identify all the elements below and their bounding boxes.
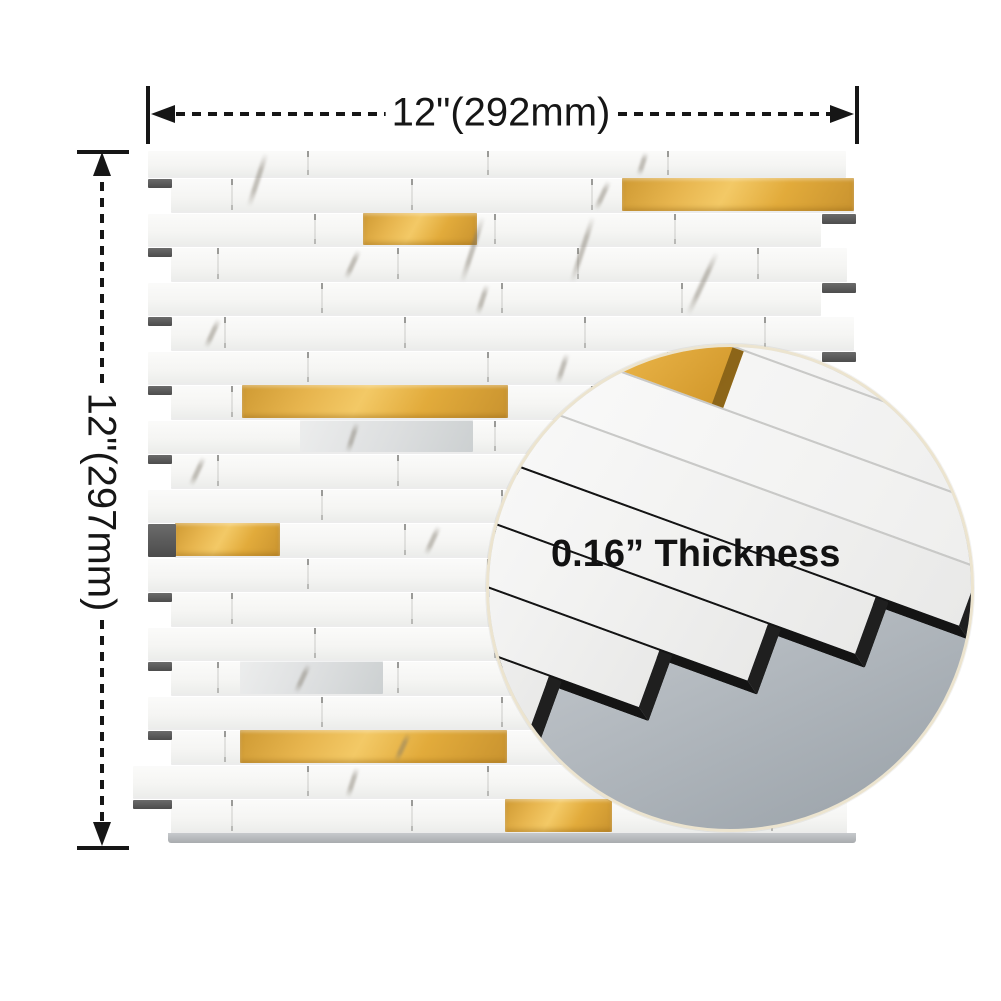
height-dimension-label: 12"(297mm): [79, 387, 124, 618]
dimension-endbar-right: [855, 86, 859, 144]
tile-row: [148, 150, 846, 176]
grout-joint: [321, 490, 323, 521]
backing-stub-right: [822, 283, 856, 293]
grout-joint: [591, 179, 593, 210]
grout-joint: [224, 731, 226, 762]
gold-accent: [175, 523, 280, 556]
product-dimension-image: 0.16” Thickness 12"(292mm) 12"(297mm): [0, 0, 1001, 1001]
width-dimension-label: 12"(292mm): [386, 91, 617, 136]
backing-stub-left: [148, 731, 172, 740]
grout-joint: [224, 317, 226, 348]
grout-joint: [231, 593, 233, 624]
arrow-left-icon: [151, 105, 175, 123]
gold-accent: [242, 385, 508, 418]
tile-row: [171, 316, 854, 349]
marble-accent: [240, 661, 383, 694]
gold-accent: [505, 799, 612, 832]
panel-bottom-edge: [168, 833, 856, 843]
grout-joint: [674, 214, 676, 245]
backing-stub-left: [148, 317, 172, 326]
grout-joint: [667, 151, 669, 175]
dimension-endbar-left: [146, 86, 150, 144]
grout-joint: [404, 524, 406, 555]
thickness-label: 0.16” Thickness: [551, 533, 840, 576]
backing-stub-left: [148, 455, 172, 464]
grout-joint: [321, 283, 323, 314]
grout-joint: [217, 455, 219, 486]
dimension-dashed-line: [100, 620, 104, 830]
grout-joint: [321, 697, 323, 728]
grout-joint: [307, 766, 309, 797]
grout-joint: [231, 179, 233, 210]
dimension-dashed-line: [618, 112, 844, 116]
grout-joint: [584, 317, 586, 348]
arrow-right-icon: [830, 105, 854, 123]
grout-joint: [411, 800, 413, 831]
grout-joint: [681, 283, 683, 314]
grout-joint: [217, 662, 219, 693]
marble-accent: [300, 420, 473, 453]
backing-stub-left: [148, 593, 172, 602]
backing-stub-left: [148, 524, 176, 557]
grout-joint: [501, 283, 503, 314]
grout-joint: [314, 628, 316, 659]
arrow-down-icon: [93, 822, 111, 846]
backing-stub-right: [822, 214, 856, 224]
grout-joint: [217, 248, 219, 279]
dimension-endbar-bottom: [77, 846, 129, 850]
backing-stub-left: [148, 386, 172, 395]
grout-joint: [411, 593, 413, 624]
dimension-dashed-line: [100, 166, 104, 386]
gold-accent: [240, 730, 507, 763]
grout-joint: [757, 248, 759, 279]
backing-stub-left: [148, 248, 172, 257]
grout-joint: [307, 352, 309, 383]
grout-joint: [397, 662, 399, 693]
backing-stub-left: [133, 800, 172, 809]
grout-joint: [231, 800, 233, 831]
grout-joint: [411, 179, 413, 210]
grout-joint: [764, 317, 766, 348]
gold-accent: [622, 178, 854, 211]
grout-joint: [397, 248, 399, 279]
arrow-up-icon: [93, 152, 111, 176]
tile-row: [171, 247, 847, 280]
grout-joint: [397, 455, 399, 486]
grout-joint: [487, 151, 489, 175]
grout-joint: [314, 214, 316, 245]
grout-joint: [494, 214, 496, 245]
grout-joint: [307, 151, 309, 175]
gold-accent: [363, 213, 477, 246]
backing-stub-left: [148, 662, 172, 671]
grout-joint: [307, 559, 309, 590]
backing-stub-left: [148, 179, 172, 188]
grout-joint: [404, 317, 406, 348]
grout-joint: [231, 386, 233, 417]
dimension-dashed-line: [160, 112, 386, 116]
thickness-inset: 0.16” Thickness: [486, 344, 974, 832]
